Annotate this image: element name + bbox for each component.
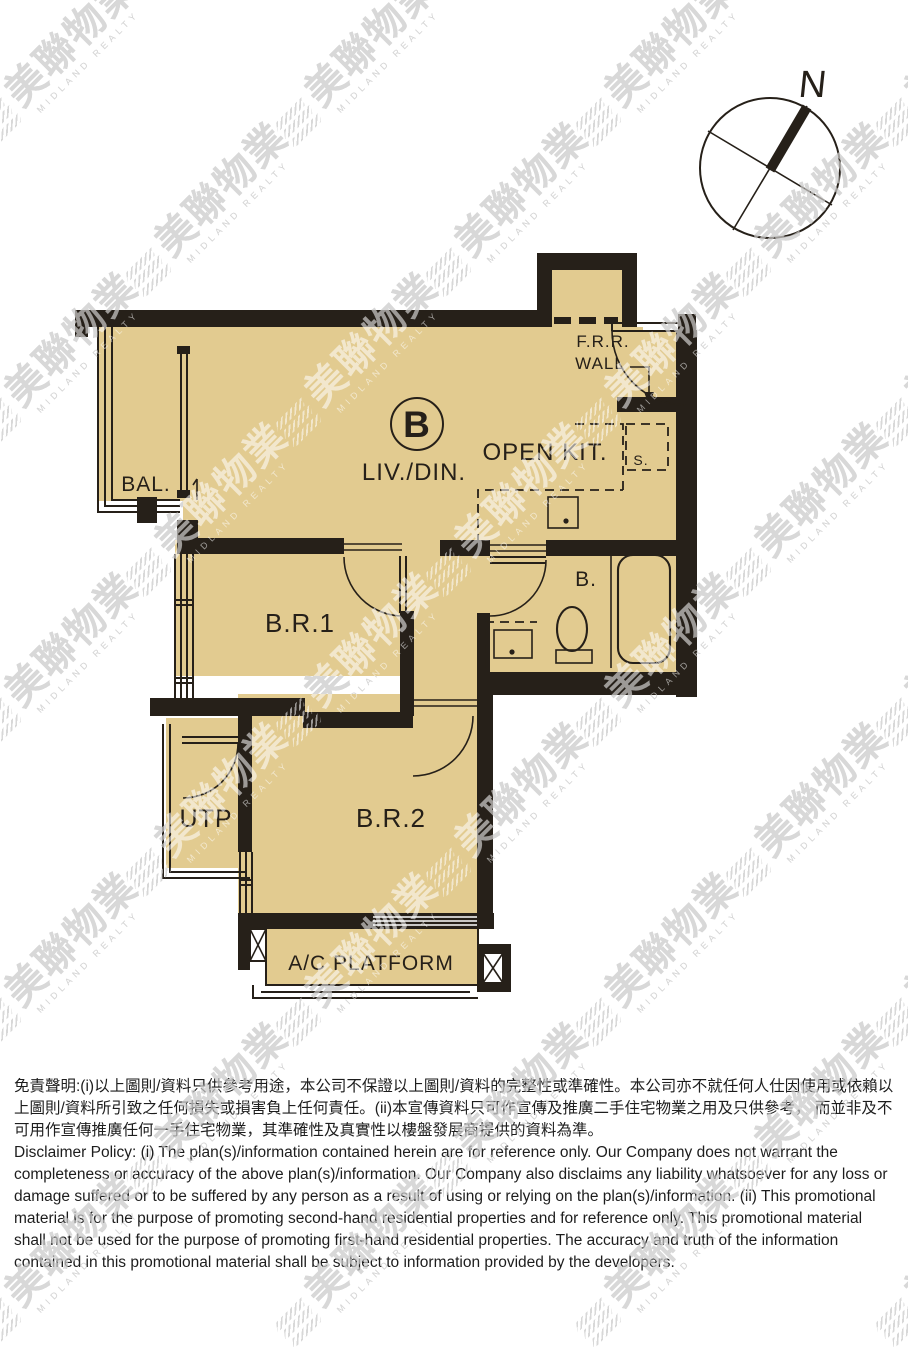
midland-logo-bars-icon (271, 1295, 325, 1349)
disclaimer-en: Disclaimer Policy: (i) The plan(s)/infor… (14, 1142, 896, 1274)
disclaimer-zh: 免責聲明:(i)以上圖則/資料只供參考用途，本公司不保證以上圖則/資料的完整性或… (14, 1076, 896, 1142)
label-bedroom1: B.R.1 (265, 608, 335, 638)
x-box-right (483, 953, 503, 983)
frr-dash (579, 317, 596, 324)
compass: N (700, 64, 840, 238)
label-frr-2: WALL (575, 354, 625, 373)
midland-logo-bars-icon (0, 1295, 25, 1349)
label-ac-platform: A/C PLATFORM (288, 952, 454, 975)
label-living-dining: LIV./DIN. (362, 459, 466, 486)
north-label: N (797, 64, 830, 106)
frr-dash (554, 317, 571, 324)
label-utp: UTP (180, 805, 233, 833)
unit-label: B (403, 404, 431, 445)
label-frr-1: F.R.R. (576, 332, 629, 351)
slider-nub (177, 490, 190, 498)
midland-logo-bars-icon (271, 1295, 325, 1349)
label-balcony: BAL. (121, 473, 171, 496)
slider-nub (177, 346, 190, 354)
label-bedroom2: B.R.2 (356, 803, 426, 833)
x-box-left (250, 929, 266, 961)
compass-needle (770, 107, 807, 170)
disclaimer: 免責聲明:(i)以上圖則/資料只供參考用途，本公司不保證以上圖則/資料的完整性或… (14, 1076, 896, 1274)
label-bathroom: B. (575, 568, 597, 591)
label-open-kitchen: OPEN KIT. (482, 439, 607, 466)
midland-logo-bars-icon (571, 1295, 625, 1349)
midland-logo-bars-icon (871, 1295, 908, 1349)
floor-corridor (403, 556, 480, 716)
label-store: S. (633, 452, 648, 468)
midland-logo-bars-icon (571, 1295, 625, 1349)
midland-logo-bars-icon (871, 1295, 908, 1349)
midland-logo-bars-icon (0, 1295, 25, 1349)
